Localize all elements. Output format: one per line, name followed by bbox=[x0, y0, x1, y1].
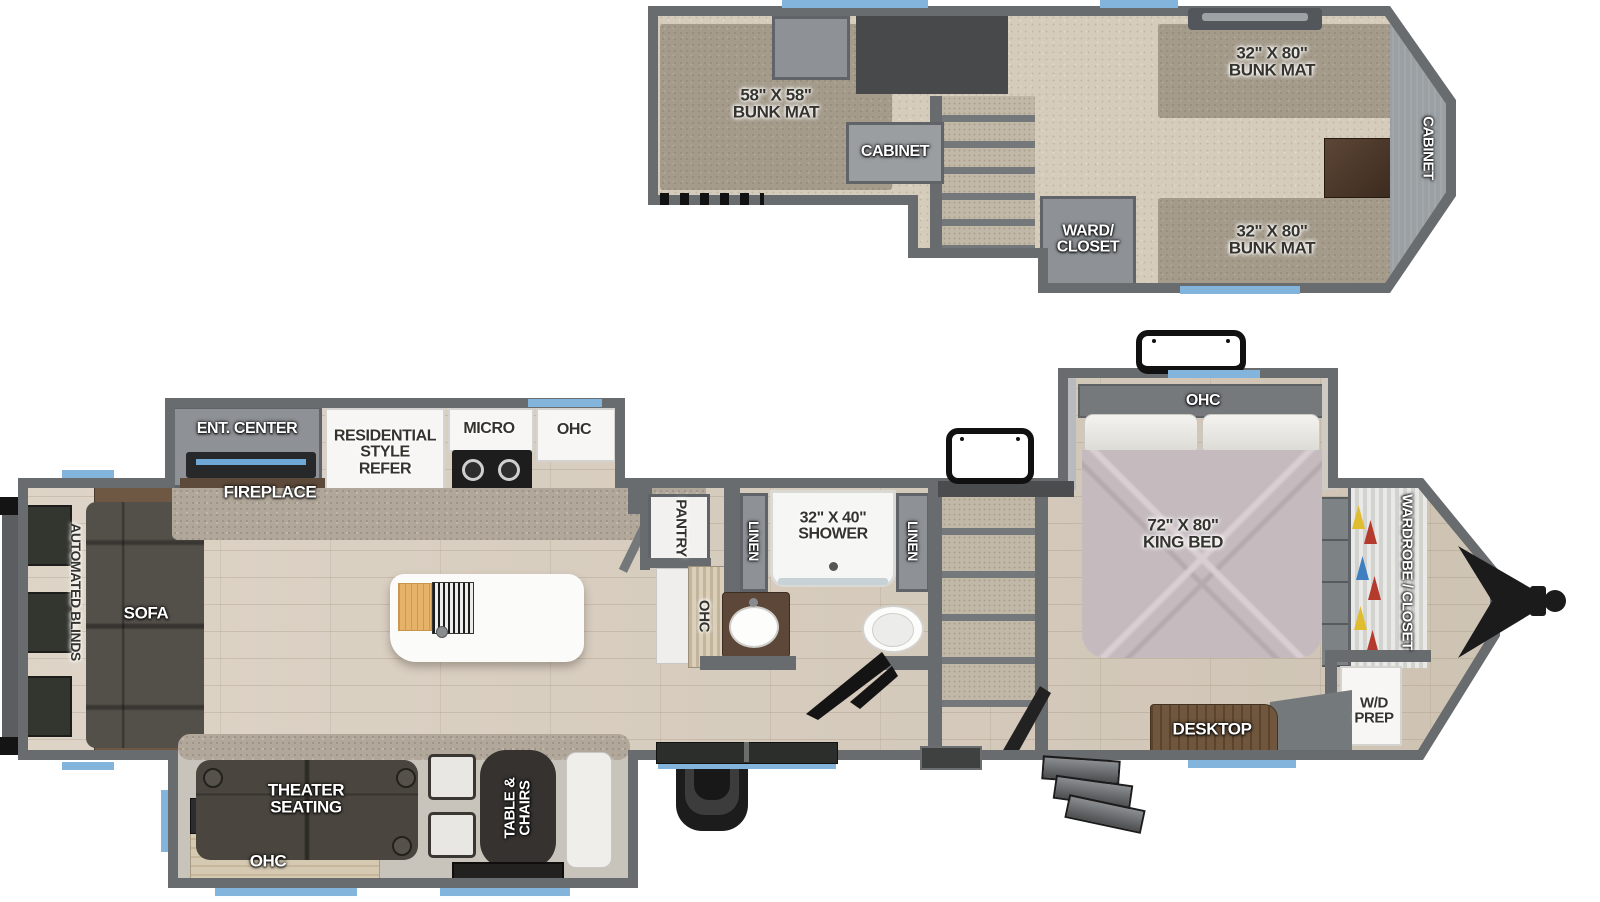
rear-window bbox=[22, 505, 72, 566]
kitchen-ohc-label: OHC bbox=[557, 422, 591, 438]
fireplace-label: FIREPLACE bbox=[224, 483, 317, 500]
entry-step-mat bbox=[920, 746, 982, 770]
rear-bumper-cap bbox=[0, 497, 18, 515]
king-bed-label: 72" X 80" KING BED bbox=[1143, 517, 1223, 552]
floorplan-canvas: 58" X 58" BUNK MAT CABINET WARD/ CLOSET … bbox=[0, 0, 1600, 902]
main-level: ENT. CENTER FIREPLACE RESIDENTIAL STYLE … bbox=[0, 0, 1600, 902]
dinette-bench bbox=[566, 752, 612, 868]
cutting-board bbox=[398, 583, 432, 631]
stair-tread bbox=[942, 664, 1035, 707]
king-bed bbox=[1082, 450, 1322, 658]
wd-top-wall bbox=[1325, 650, 1431, 662]
window-accent bbox=[215, 888, 357, 896]
bath-sink-icon bbox=[729, 606, 779, 648]
bath-bottom-wall bbox=[700, 656, 796, 670]
ent-center-tv bbox=[186, 452, 316, 478]
shower-drain-icon bbox=[829, 562, 838, 571]
window-accent bbox=[62, 470, 114, 478]
toilet-seat-icon bbox=[872, 613, 914, 647]
shower-glass bbox=[778, 578, 888, 585]
theater-ohc-label: OHC bbox=[250, 852, 287, 869]
closet-dresser bbox=[1322, 497, 1348, 667]
cupholder-icon bbox=[203, 768, 223, 788]
window-accent bbox=[161, 790, 168, 852]
wardrobe-label: WARDROBE / CLOSET bbox=[1399, 494, 1414, 650]
bath-left-wall bbox=[724, 488, 740, 595]
window-accent bbox=[62, 762, 114, 770]
window-accent bbox=[1168, 370, 1260, 378]
tv-antenna-icon bbox=[1136, 330, 1246, 374]
stair-tread bbox=[942, 492, 1035, 535]
pantry-open-cabinet bbox=[656, 568, 690, 664]
sink-faucet-icon bbox=[749, 598, 758, 607]
linen-right-label: LINEN bbox=[906, 521, 920, 561]
stairs-left-wall bbox=[928, 488, 942, 750]
theater-seating-label: THEATER SEATING bbox=[268, 782, 344, 817]
window-accent bbox=[440, 888, 570, 896]
linen-left-label: LINEN bbox=[747, 521, 761, 561]
burner-icon bbox=[462, 459, 484, 481]
bed-ohc-label: OHC bbox=[1186, 393, 1220, 409]
hitch-knob-icon bbox=[1544, 590, 1566, 612]
dinette-chair bbox=[428, 812, 476, 858]
rear-window bbox=[22, 592, 72, 653]
island-faucet-icon bbox=[436, 626, 448, 638]
window-accent bbox=[1188, 760, 1296, 768]
wd-prep-label: W/D PREP bbox=[1354, 696, 1393, 727]
stair-tread bbox=[942, 578, 1035, 621]
table-chairs-label: TABLE & CHAIRS bbox=[503, 777, 534, 838]
stair-tread bbox=[942, 535, 1035, 578]
rear-window bbox=[22, 676, 72, 737]
window-accent bbox=[528, 399, 602, 407]
dinette-chair bbox=[428, 754, 476, 800]
entry-door-divider bbox=[744, 742, 749, 762]
theater-back-ledge bbox=[178, 734, 630, 760]
tv-bracket-icon bbox=[946, 428, 1034, 484]
ent-center-tv-screen bbox=[196, 459, 306, 465]
shower-label: 32" X 40" SHOWER bbox=[798, 511, 868, 544]
desktop-label: DESKTOP bbox=[1172, 720, 1251, 737]
pantry-ohc-label: OHC bbox=[696, 600, 711, 632]
ent-center-label: ENT. CENTER bbox=[197, 421, 298, 437]
entry-steps-core bbox=[694, 769, 730, 800]
cupholder-icon bbox=[392, 836, 412, 856]
rear-bumper-cap bbox=[0, 737, 18, 755]
sofa-label: SOFA bbox=[124, 604, 169, 621]
stair-tread bbox=[942, 621, 1035, 664]
burner-icon bbox=[498, 459, 520, 481]
cupholder-icon bbox=[396, 768, 416, 788]
pantry-label: PANTRY bbox=[673, 499, 688, 557]
automated-blinds-label: AUTOMATED BLINDS bbox=[69, 523, 83, 661]
micro-label: MICRO bbox=[463, 421, 514, 437]
refer-label: RESIDENTIAL STYLE REFER bbox=[334, 429, 436, 478]
rear-bumper bbox=[2, 497, 18, 755]
